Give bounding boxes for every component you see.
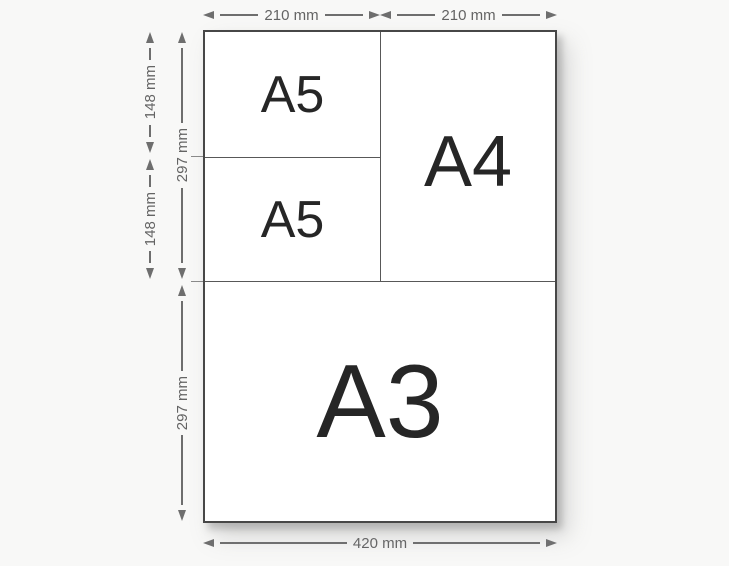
dim-line bbox=[325, 14, 363, 16]
arrow-right-icon bbox=[546, 11, 557, 19]
dim-line bbox=[220, 542, 347, 544]
arrow-down-icon bbox=[146, 268, 154, 279]
dim-line bbox=[181, 435, 183, 505]
arrow-right-icon bbox=[546, 539, 557, 547]
dim-left-297-upper: 297 mm bbox=[174, 32, 190, 279]
dim-left-148-bottom: 148 mm bbox=[142, 159, 158, 279]
dim-label: 420 mm bbox=[353, 536, 407, 551]
dim-label: 210 mm bbox=[264, 8, 318, 23]
dim-left-297-lower: 297 mm bbox=[174, 285, 190, 521]
arrow-up-icon bbox=[146, 159, 154, 170]
arrow-down-icon bbox=[178, 268, 186, 279]
arrow-right-icon bbox=[369, 11, 380, 19]
dim-label: 297 mm bbox=[175, 376, 190, 430]
dim-label: 148 mm bbox=[143, 65, 158, 119]
paper-a4: A4 bbox=[380, 32, 555, 281]
dim-line bbox=[149, 125, 151, 137]
paper-sheet: A5 A5 A4 A3 bbox=[203, 30, 557, 523]
paper-label: A4 bbox=[424, 116, 512, 198]
arrow-left-icon bbox=[203, 539, 214, 547]
dim-top-left-210: 210 mm bbox=[203, 7, 380, 23]
extension-tick bbox=[191, 156, 203, 157]
arrow-left-icon bbox=[203, 11, 214, 19]
arrow-down-icon bbox=[146, 142, 154, 153]
dim-line bbox=[413, 542, 540, 544]
dim-label: 210 mm bbox=[441, 8, 495, 23]
dim-left-148-top: 148 mm bbox=[142, 32, 158, 153]
dim-top-right-210: 210 mm bbox=[380, 7, 557, 23]
dim-bottom-420: 420 mm bbox=[203, 535, 557, 551]
paper-label: A5 bbox=[261, 69, 325, 121]
arrow-up-icon bbox=[146, 32, 154, 43]
arrow-up-icon bbox=[178, 32, 186, 43]
paper-label: A5 bbox=[261, 194, 325, 246]
paper-a5-bottom: A5 bbox=[205, 158, 380, 281]
dim-line bbox=[181, 301, 183, 371]
dim-line bbox=[149, 48, 151, 60]
paper-a3: A3 bbox=[205, 281, 555, 521]
dim-line bbox=[149, 175, 151, 187]
paper-size-diagram: 210 mm 210 mm 148 mm 148 mm 297 mm 297 bbox=[0, 0, 729, 566]
paper-a5-top: A5 bbox=[205, 32, 380, 158]
dim-line bbox=[502, 14, 540, 16]
arrow-up-icon bbox=[178, 285, 186, 296]
dim-line bbox=[149, 251, 151, 263]
arrow-left-icon bbox=[380, 11, 391, 19]
dim-line bbox=[397, 14, 435, 16]
dim-label: 148 mm bbox=[143, 192, 158, 246]
paper-label: A3 bbox=[316, 350, 443, 454]
dim-line bbox=[181, 188, 183, 263]
extension-tick bbox=[191, 281, 203, 282]
arrow-down-icon bbox=[178, 510, 186, 521]
dim-line bbox=[220, 14, 258, 16]
dim-line bbox=[181, 48, 183, 123]
dim-label: 297 mm bbox=[175, 128, 190, 182]
